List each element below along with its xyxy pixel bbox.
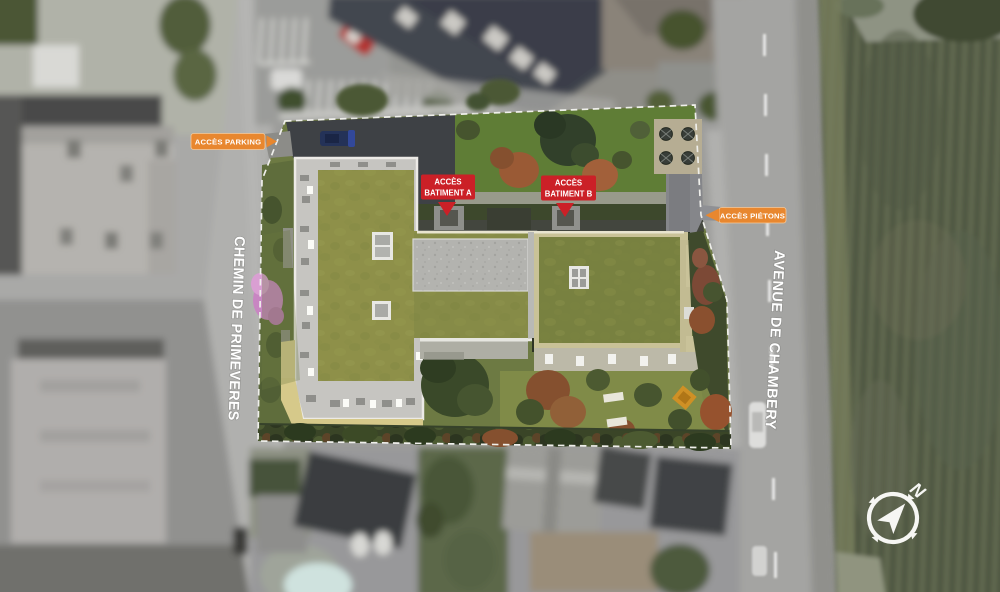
svg-text:ACCÈS PIÉTONS: ACCÈS PIÉTONS bbox=[720, 211, 785, 220]
svg-text:BATIMENT B: BATIMENT B bbox=[545, 190, 593, 199]
svg-text:ACCÈS: ACCÈS bbox=[434, 178, 461, 187]
svg-text:BATIMENT A: BATIMENT A bbox=[424, 189, 472, 198]
svg-text:ACCÈS PARKING: ACCÈS PARKING bbox=[195, 138, 262, 147]
svg-text:ACCÈS: ACCÈS bbox=[555, 179, 582, 188]
